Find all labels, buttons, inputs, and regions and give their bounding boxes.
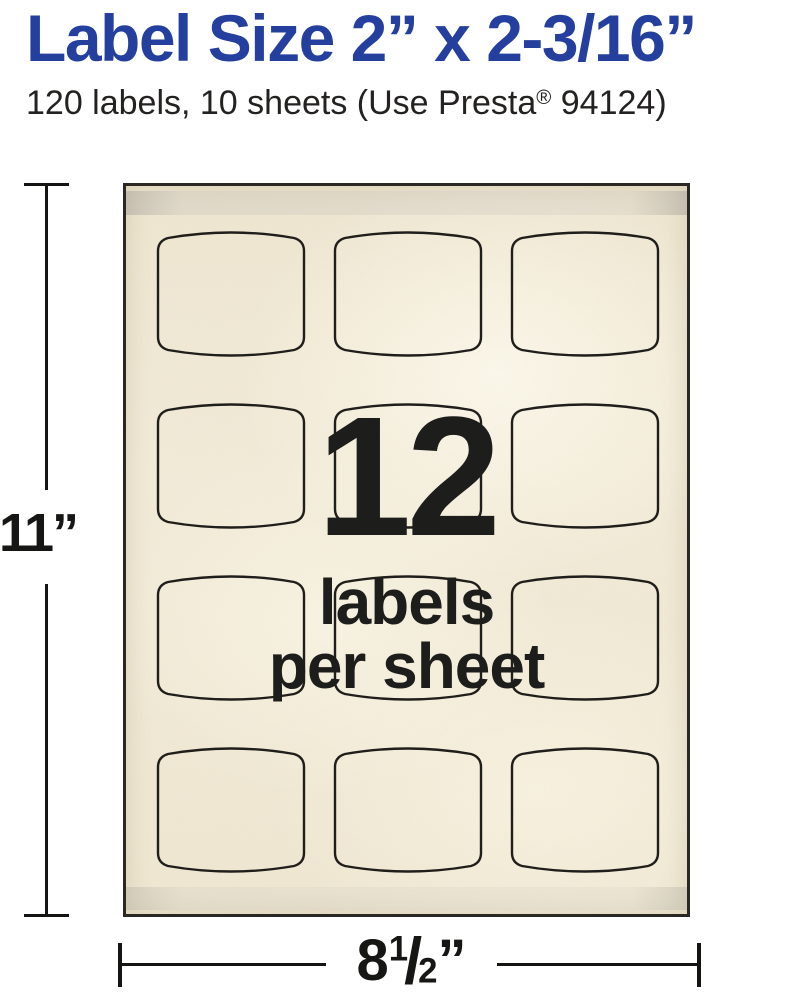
width-fraction-denominator: 2: [418, 952, 437, 991]
height-dimension-line-upper: [45, 183, 48, 490]
page-subtitle: 120 labels, 10 sheets (Use Presta® 94124…: [26, 84, 667, 123]
labels-count-overlay: 12 labels per sheet: [126, 398, 687, 698]
label-outline: [156, 743, 306, 877]
width-dimension-tick-right: [697, 943, 701, 987]
label-outline: [510, 227, 660, 361]
labels-count-caption-line2: per sheet: [126, 634, 687, 698]
labels-count-caption-line1: labels: [126, 570, 687, 634]
registered-trademark-symbol: ®: [536, 87, 551, 109]
label-outline: [156, 227, 306, 361]
sheet-top-liner-strip: [126, 191, 687, 215]
width-dimension-line-left: [121, 963, 326, 966]
height-dimension-label: 11”: [0, 506, 90, 560]
product-diagram: Label Size 2” x 2-3/16” 120 labels, 10 s…: [0, 0, 788, 1000]
label-sheet: 12 labels per sheet: [123, 183, 690, 917]
sheet-bottom-liner-strip: [126, 887, 687, 910]
height-dimension-cap-bottom: [24, 914, 69, 917]
subtitle-text: 120 labels, 10 sheets (Use Presta: [26, 84, 536, 122]
width-unit-mark: ”: [438, 928, 467, 993]
width-whole-number: 8: [356, 928, 388, 993]
width-dimension-line-right: [497, 963, 699, 966]
width-dimension-label: 81/2”: [326, 925, 497, 996]
subtitle-sku: 94124): [551, 84, 666, 122]
height-dimension-line-lower: [45, 584, 48, 917]
label-outline: [333, 227, 483, 361]
page-title: Label Size 2” x 2-3/16”: [26, 4, 696, 73]
label-outline: [333, 743, 483, 877]
labels-count: 12: [126, 398, 687, 558]
label-outline: [510, 743, 660, 877]
